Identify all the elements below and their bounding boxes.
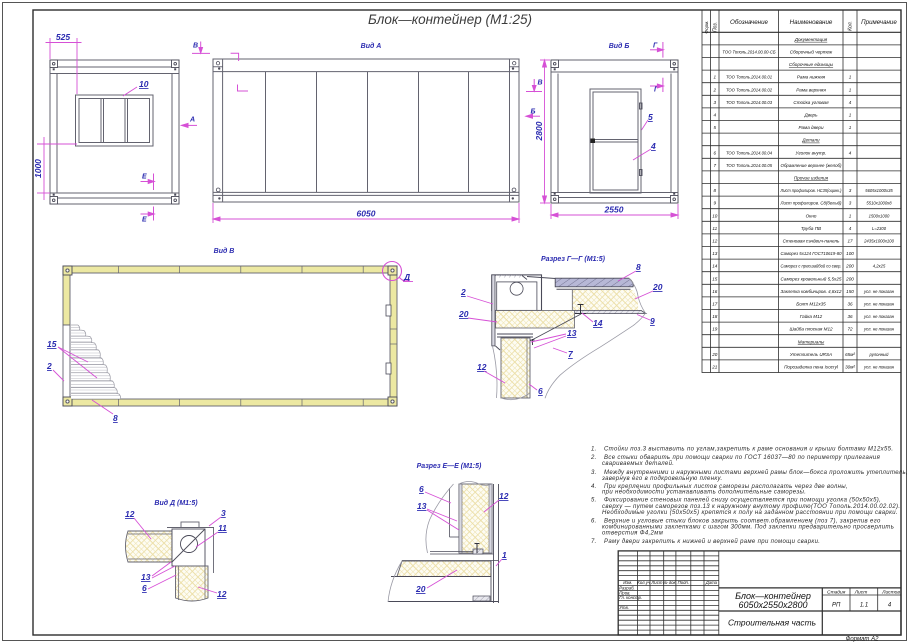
svg-text:3: 3 (221, 508, 226, 518)
svg-text:ТОО Тополь.2014.00.04: ТОО Тополь.2014.00.04 (726, 150, 773, 155)
svg-text:5: 5 (714, 125, 717, 130)
svg-text:12: 12 (712, 239, 718, 244)
svg-text:усл. не показан: усл. не показан (863, 314, 895, 319)
svg-text:РП: РП (832, 603, 841, 609)
svg-text:525: 525 (56, 32, 70, 42)
svg-text:усл. не показан: усл. не показан (863, 365, 895, 370)
svg-text:Лист профилиров. НС35(оцинк.): Лист профилиров. НС35(оцинк.) (780, 188, 842, 193)
svg-text:сверху — путем саморезов поз.1: сверху — путем саморезов поз.13 к наружн… (602, 504, 900, 510)
svg-text:Уголок внутр.: Уголок внутр. (796, 150, 827, 155)
svg-text:Наименование: Наименование (790, 19, 833, 26)
svg-text:1: 1 (849, 213, 852, 218)
svg-text:Необходимые уголки (50х50х5) к: Необходимые уголки (50х50х5) крепятся к … (602, 510, 898, 516)
svg-text:Форм.: Форм. (704, 20, 709, 33)
svg-text:2: 2 (713, 87, 717, 92)
svg-text:2550: 2550 (604, 205, 624, 215)
svg-text:Гл. констр.: Гл. констр. (619, 595, 642, 600)
svg-text:12: 12 (125, 509, 135, 519)
svg-text:17: 17 (712, 302, 718, 307)
svg-text:6.: 6. (591, 519, 597, 525)
svg-text:1: 1 (502, 550, 507, 560)
svg-text:8: 8 (714, 188, 717, 193)
svg-text:Разрез Г—Г (М1:5): Разрез Г—Г (М1:5) (541, 256, 606, 263)
svg-text:4: 4 (650, 141, 656, 151)
svg-text:L=2300: L=2300 (872, 226, 887, 231)
svg-text:4,2х25: 4,2х25 (873, 264, 886, 269)
svg-text:5605х1000х35: 5605х1000х35 (865, 188, 893, 193)
svg-text:Стойка угловая: Стойка угловая (793, 99, 829, 105)
svg-text:Примечание: Примечание (861, 19, 897, 26)
svg-text:при необходимости устанавливат: при необходимости устанавливать дополнит… (602, 490, 806, 496)
svg-text:Лист: Лист (650, 580, 662, 585)
svg-text:5.: 5. (591, 498, 597, 504)
svg-text:5: 5 (648, 112, 653, 122)
svg-text:11: 11 (218, 523, 227, 533)
svg-text:ТОО Тополь.2014.00.05: ТОО Тополь.2014.00.05 (726, 163, 773, 168)
svg-text:18: 18 (712, 314, 718, 319)
svg-text:17: 17 (847, 239, 853, 244)
svg-text:1: 1 (714, 75, 717, 80)
svg-text:Труба ПВ: Труба ПВ (801, 226, 821, 231)
svg-text:200: 200 (845, 276, 854, 281)
svg-text:Заклепка комбиниров. 4,8х12: Заклепка комбиниров. 4,8х12 (781, 289, 842, 294)
svg-text:1000: 1000 (33, 159, 43, 178)
svg-text:13: 13 (567, 328, 577, 338)
svg-text:Стеновая сэндвич-панель: Стеновая сэндвич-панель (783, 239, 840, 244)
svg-text:1.1: 1.1 (860, 603, 868, 609)
svg-text:30м²: 30м² (845, 365, 855, 370)
svg-text:3: 3 (714, 100, 717, 105)
svg-text:5510х1000х8: 5510х1000х8 (866, 201, 892, 206)
svg-text:Рама нижняя: Рама нижняя (797, 75, 826, 80)
svg-text:13: 13 (141, 572, 151, 582)
svg-text:36: 36 (847, 314, 853, 319)
svg-text:6050: 6050 (357, 209, 376, 219)
svg-text:Окно: Окно (806, 213, 817, 218)
svg-text:2435х1000х100: 2435х1000х100 (863, 239, 894, 244)
svg-text:13: 13 (417, 501, 427, 511)
svg-text:9: 9 (650, 316, 655, 326)
svg-text:Строительная часть: Строительная часть (728, 618, 816, 628)
svg-text:Подп.: Подп. (678, 580, 689, 585)
svg-text:1: 1 (849, 125, 852, 130)
svg-text:Стойки поз.3 выставить по угла: Стойки поз.3 выставить по углам,закрепит… (604, 445, 893, 452)
svg-text:36: 36 (847, 302, 853, 307)
svg-text:4.: 4. (591, 484, 597, 490)
svg-text:А: А (189, 117, 195, 124)
svg-text:4: 4 (849, 226, 852, 231)
svg-text:100: 100 (846, 251, 854, 256)
svg-text:7.: 7. (591, 539, 597, 545)
svg-text:завернув его в подкровельную п: завернув его в подкровельную пленку. (601, 476, 723, 482)
svg-text:3.: 3. (591, 470, 597, 476)
svg-text:20: 20 (458, 309, 469, 319)
svg-text:12: 12 (477, 362, 487, 372)
svg-text:Вид Б: Вид Б (609, 42, 630, 50)
svg-text:ТОО Тополь.2014.00.02: ТОО Тополь.2014.00.02 (726, 87, 773, 92)
svg-text:Блок—контейнер (М1:25): Блок—контейнер (М1:25) (368, 12, 532, 27)
svg-text:Обозначение: Обозначение (730, 19, 768, 26)
svg-text:15: 15 (47, 339, 57, 349)
svg-text:12: 12 (217, 589, 227, 599)
svg-text:ТОО Тополь.2014.00.03: ТОО Тополь.2014.00.03 (726, 100, 773, 105)
svg-text:1: 1 (849, 113, 852, 118)
svg-text:19: 19 (712, 327, 718, 332)
svg-text:Рама двери: Рама двери (798, 125, 824, 130)
svg-text:14: 14 (712, 264, 718, 269)
svg-text:65м²: 65м² (845, 352, 855, 357)
svg-text:6: 6 (419, 484, 424, 494)
svg-text:8: 8 (113, 413, 118, 423)
svg-text:Обрамление верхнее (желоб): Обрамление верхнее (желоб) (781, 163, 842, 168)
svg-text:Саморез с пресшайбой со свер.: Саморез с пресшайбой со свер. (781, 263, 842, 269)
svg-text:Детали: Детали (801, 138, 820, 143)
svg-text:Саморез 5х124 ГОСТ10619-80: Саморез 5х124 ГОСТ10619-80 (781, 251, 842, 256)
svg-text:20: 20 (652, 282, 663, 292)
svg-text:Порозаделка пена Isocryl: Порозаделка пена Isocryl (784, 365, 839, 370)
svg-text:Разрез Е—Е (М1:5): Разрез Е—Е (М1:5) (417, 463, 482, 470)
svg-text:150: 150 (846, 289, 854, 294)
svg-text:20: 20 (711, 352, 718, 357)
svg-text:7: 7 (714, 163, 717, 168)
svg-text:отверстия Ф4,2мм: отверстия Ф4,2мм (602, 530, 663, 536)
svg-text:Кол.: Кол. (848, 21, 854, 31)
svg-text:Е: Е (142, 217, 147, 224)
svg-text:6: 6 (714, 150, 717, 155)
svg-text:Шайба плоская М12: Шайба плоская М12 (789, 326, 833, 332)
svg-text:Листов: Листов (881, 590, 900, 596)
svg-text:9: 9 (714, 201, 717, 206)
svg-text:Фиксирование стеновых панелей: Фиксирование стеновых панелей снизу осущ… (604, 497, 881, 504)
svg-text:Формат А2: Формат А2 (846, 637, 879, 643)
svg-text:Вид А: Вид А (361, 42, 382, 50)
svg-text:Поз.: Поз. (713, 22, 719, 32)
svg-text:усл. не показан: усл. не показан (863, 289, 895, 294)
svg-text:№ док.: № док. (663, 580, 677, 585)
svg-text:усл. не показан: усл. не показан (863, 327, 895, 332)
svg-text:Документация: Документация (794, 37, 828, 42)
svg-text:13: 13 (712, 251, 718, 256)
svg-text:Дверь: Дверь (803, 113, 818, 118)
svg-text:Рама верхняя: Рама верхняя (796, 87, 826, 92)
svg-text:Лист: Лист (854, 590, 868, 596)
svg-text:Саморез кровельный 5,5х25: Саморез кровельный 5,5х25 (781, 275, 842, 281)
svg-text:4: 4 (714, 113, 717, 118)
svg-text:1500х1000: 1500х1000 (869, 213, 890, 218)
svg-text:14: 14 (593, 318, 603, 328)
svg-text:Сборочный чертеж: Сборочный чертеж (790, 49, 833, 55)
svg-text:4: 4 (849, 100, 852, 105)
svg-text:Стадия: Стадия (827, 590, 846, 596)
svg-text:12: 12 (499, 491, 509, 501)
svg-text:Утеплитель URSA: Утеплитель URSA (790, 352, 832, 357)
svg-text:усл. не показан: усл. не показан (863, 302, 895, 307)
svg-text:3: 3 (849, 201, 852, 206)
svg-text:21: 21 (711, 365, 718, 370)
svg-text:6050х2550х2800: 6050х2550х2800 (738, 600, 807, 610)
svg-text:1: 1 (849, 87, 852, 92)
svg-text:Д: Д (403, 272, 410, 282)
svg-text:16: 16 (712, 289, 718, 294)
svg-text:2.: 2. (590, 455, 597, 461)
svg-text:Е: Е (142, 174, 147, 181)
svg-text:200: 200 (845, 264, 854, 269)
svg-text:ТОО Тополь.2014.00.00-СБ: ТОО Тополь.2014.00.00-СБ (722, 50, 776, 55)
svg-text:свариваемых деталей.: свариваемых деталей. (602, 460, 674, 467)
svg-text:Гайка М12: Гайка М12 (800, 313, 823, 319)
svg-text:11: 11 (712, 226, 717, 231)
svg-text:8: 8 (636, 262, 641, 272)
svg-text:6: 6 (538, 386, 543, 396)
svg-text:Утв.: Утв. (619, 605, 629, 610)
svg-text:72: 72 (847, 327, 853, 332)
svg-text:рулонный: рулонный (869, 352, 890, 357)
svg-text:2800: 2800 (534, 121, 544, 141)
svg-text:4: 4 (849, 150, 852, 155)
svg-text:Материалы: Материалы (798, 339, 825, 344)
svg-text:2: 2 (460, 287, 466, 297)
svg-text:Вид Д (М1:5): Вид Д (М1:5) (154, 499, 198, 507)
svg-text:10: 10 (712, 213, 718, 218)
svg-text:В: В (193, 43, 198, 50)
svg-text:3: 3 (849, 188, 852, 193)
svg-text:Прочие изделия: Прочие изделия (794, 176, 829, 181)
svg-text:Кол.уч: Кол.уч (637, 580, 651, 585)
svg-text:1.: 1. (591, 446, 597, 452)
svg-text:Раму двери закрепить к нижней: Раму двери закрепить к нижней и верхней … (604, 538, 820, 545)
svg-text:2: 2 (46, 361, 52, 371)
svg-text:Сборочные единицы: Сборочные единицы (789, 62, 834, 67)
svg-text:В: В (538, 80, 543, 87)
svg-text:Лист профилиров. С8(белый): Лист профилиров. С8(белый) (780, 200, 842, 206)
svg-text:Вид В: Вид В (214, 247, 235, 255)
svg-text:Дата: Дата (705, 580, 718, 585)
svg-text:ТОО Тополь.2014.00.01: ТОО Тополь.2014.00.01 (726, 75, 772, 80)
svg-text:10: 10 (139, 79, 149, 89)
svg-text:1: 1 (849, 75, 852, 80)
svg-text:6: 6 (142, 583, 147, 593)
svg-text:20: 20 (415, 584, 426, 594)
svg-text:15: 15 (712, 276, 718, 281)
svg-text:Болт М12х35: Болт М12х35 (796, 302, 826, 307)
